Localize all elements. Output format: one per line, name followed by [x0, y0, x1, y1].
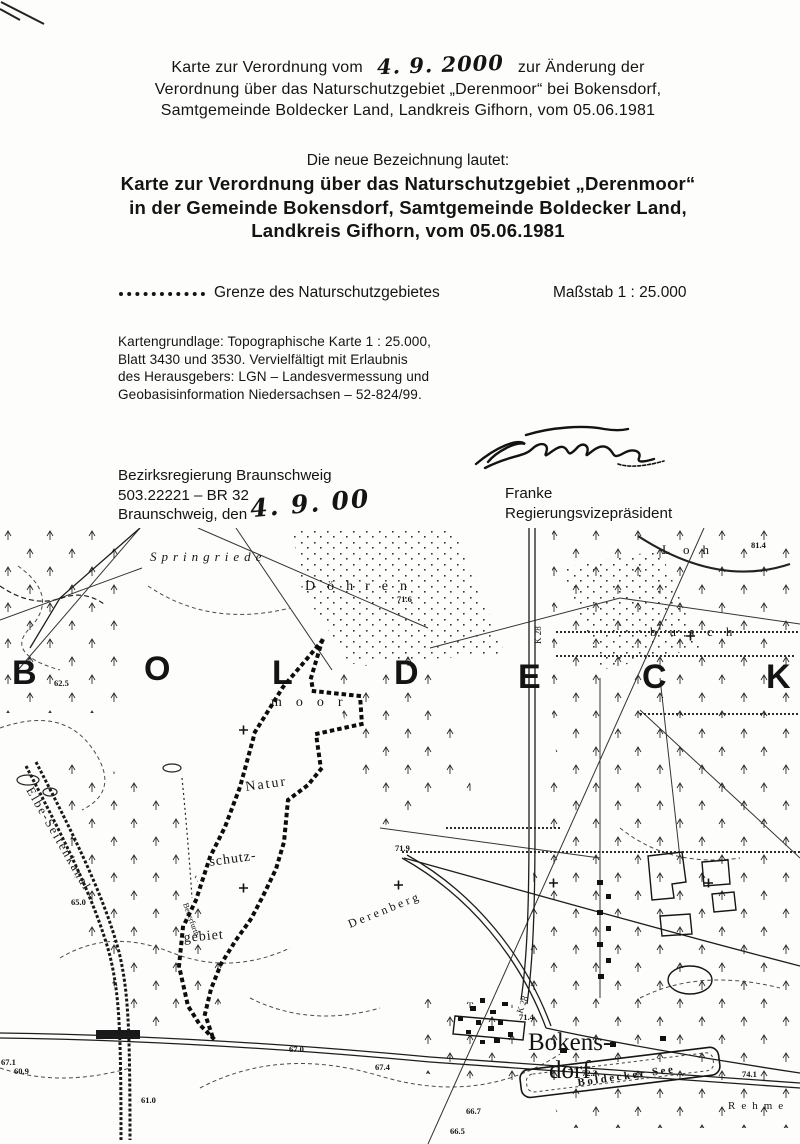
header-text-pre: Karte zur Verordnung vom [171, 57, 363, 79]
canal-bridge [96, 1030, 140, 1039]
signer-title: Regierungsvizepräsident [505, 504, 672, 524]
place-label-bokensdorf-1: Bokens- [528, 1029, 611, 1056]
place-label-loh: Loh [662, 542, 722, 557]
region-letter: L [272, 654, 293, 692]
header-line2: Verordnung über das Naturschutzgebiet „D… [88, 79, 728, 101]
subtitle-intro: Die neue Bezeichnung lautet: [88, 152, 728, 170]
title-line2: in der Gemeinde Bokensdorf, Samtgemeinde… [50, 196, 766, 220]
handwritten-date: 4. 9. 2000 [377, 52, 505, 78]
elevation-label: 62.5 [54, 678, 69, 688]
authority-name: Bezirksregierung Braunschweig [118, 466, 332, 486]
header-line1: Karte zur Verordnung vom 4. 9. 2000 zur … [88, 54, 728, 79]
title-block: Karte zur Verordnung über das Naturschut… [50, 172, 766, 243]
elevation-label: 61.0 [141, 1095, 156, 1105]
elevation-label: 71.9 [395, 843, 410, 853]
elevation-label: 81.4 [751, 540, 767, 550]
legend-boundary-symbol [119, 292, 205, 296]
scale-label: Maßstab 1 : 25.000 [553, 284, 687, 302]
elevation-label: 60.9 [14, 1066, 29, 1076]
place-label-derenberg: Derenberg [346, 889, 423, 931]
signer-block: Franke Regierungsvizepräsident [505, 484, 672, 523]
legend-label: Grenze des Naturschutzgebietes [214, 284, 440, 302]
place-label-moor: moor [271, 695, 357, 710]
signer-name: Franke [505, 484, 672, 504]
title-line3: Landkreis Gifhorn, vom 05.06.1981 [50, 219, 766, 243]
place-label-busch: busch [650, 624, 745, 639]
source-line: Geobasisinformation Niedersachsen – 52-8… [118, 386, 431, 404]
header-line3: Samtgemeinde Boldecker Land, Landkreis G… [88, 100, 728, 122]
nsg-label-gebiet: gebiet [183, 928, 224, 946]
header-text-post: zur Änderung der [518, 57, 645, 79]
region-letter: D [394, 654, 419, 692]
elevation-label: 67.1 [1, 1057, 16, 1067]
place-label-doehren: Döhren [305, 579, 419, 594]
road-label-k28: K 28 [533, 626, 543, 644]
nsg-label-schutz: schutz- [208, 849, 257, 870]
nsg-label-natur: Natur [244, 774, 288, 795]
source-line: des Herausgebers: LGN – Landesvermessung… [118, 368, 431, 386]
region-letter: B [12, 654, 37, 692]
region-letter: O [144, 650, 170, 688]
source-line: Kartengrundlage: Topographische Karte 1 … [118, 333, 431, 351]
region-letter: E [518, 658, 541, 696]
region-letter: K [766, 658, 791, 696]
place-label-springriede: Springriede [150, 549, 266, 564]
elevation-label: 65.0 [71, 897, 86, 907]
map-source-note: Kartengrundlage: Topographische Karte 1 … [118, 333, 431, 403]
topographic-map: BOLDECKSpringriedeDöhrenLohbuschmoorNatu… [0, 528, 800, 1144]
elevation-label: 67.0 [289, 1044, 304, 1054]
source-line: Blatt 3430 und 3530. Vervielfältigt mit … [118, 351, 431, 369]
elevation-label: 72.3 [582, 1068, 597, 1078]
scan-corner-artifact [0, 0, 46, 26]
signature [468, 420, 683, 482]
title-line1: Karte zur Verordnung über das Naturschut… [50, 172, 766, 196]
elevation-label: 71.4 [519, 1012, 535, 1022]
region-letter: C [642, 658, 667, 696]
elevation-label: 66.7 [466, 1106, 482, 1116]
elevation-label: 71.6 [397, 594, 412, 604]
elevation-label: 74.1 [742, 1069, 757, 1079]
header-block: Karte zur Verordnung vom 4. 9. 2000 zur … [88, 54, 728, 122]
elevation-label: 67.4 [375, 1062, 391, 1072]
elevation-label: 66.5 [450, 1126, 465, 1136]
place-label-rehme: Rehme [728, 1100, 789, 1112]
